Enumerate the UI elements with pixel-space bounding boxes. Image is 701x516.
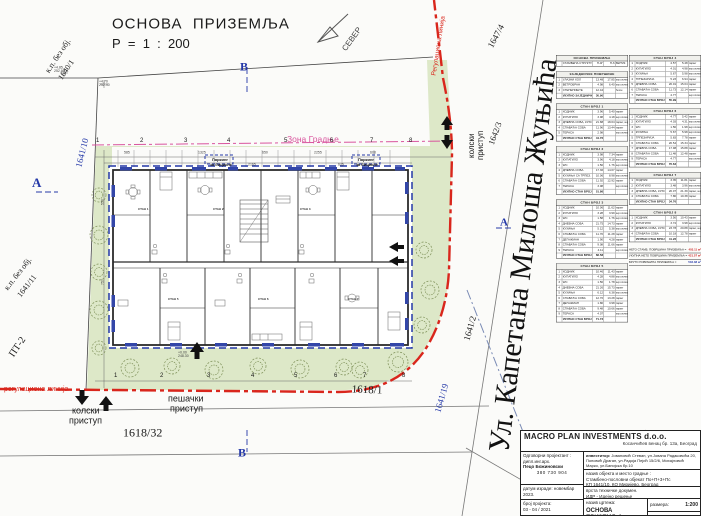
table-cell: кер.плочице <box>616 184 628 189</box>
table-cell: 20.54 <box>665 141 677 146</box>
table-cell <box>677 157 689 162</box>
plan-label: 7 <box>370 137 373 143</box>
table-cell <box>689 98 701 103</box>
table-cell: кер.плочице <box>616 275 628 280</box>
plan-label: 608 <box>370 151 376 155</box>
table-cell: ТЕРАСА <box>562 248 592 253</box>
plan-label: 5 <box>294 372 297 378</box>
plan-label: +4.70 252.40 <box>99 80 110 87</box>
table-cell: 11.92 <box>592 179 604 184</box>
table-cell: 13.48 <box>592 78 604 83</box>
table-cell: кер.плочице <box>616 115 628 120</box>
table-cell: кер.плочице <box>689 221 701 226</box>
table-cell: 7.78 <box>677 136 689 141</box>
table-cell: ХОДНИК <box>635 61 665 66</box>
plan-label: 2165 <box>248 163 256 167</box>
table-cell: 4.57 <box>665 61 677 66</box>
table-cell <box>616 317 628 322</box>
drawing-sheet: ОСНОВА ПРИЗЕМЉАР = 1 : 200СЕВЕРВВААУл. К… <box>0 0 701 516</box>
table-cell: 5.98 <box>677 130 689 135</box>
date-cell: датум израде: новембар 2023. <box>521 485 583 500</box>
table-cell <box>677 98 689 103</box>
plan-label: приступ <box>477 131 485 160</box>
table-cell: 5.67 <box>665 72 677 77</box>
table-cell: 3.96 <box>592 110 604 115</box>
table-cell: ТЕРАСА <box>562 184 592 189</box>
plan-label: 3 <box>207 372 210 378</box>
table-cell: КУПАТИЛО <box>635 67 665 72</box>
table-cell: 10.46 <box>592 270 604 275</box>
table-cell: 3.08 <box>592 184 604 189</box>
table-cell: СПАВАЋА СОБА <box>562 243 592 248</box>
table-cell: 17.85 <box>604 78 616 83</box>
plan-label: 1618/32 <box>123 427 162 440</box>
table-cell: 15.88 <box>677 146 689 151</box>
table-cell: паркет <box>689 151 701 156</box>
table-cell: кер.плочице <box>616 248 628 253</box>
plan-label: 4 <box>227 137 230 143</box>
table-cell: WC <box>562 280 592 285</box>
plan-label: 550 <box>101 199 105 205</box>
table-cell: ХОДНИК <box>635 216 665 221</box>
table-cell: 3.35 <box>665 178 677 183</box>
plan-label: 1 <box>114 372 117 378</box>
table-cell: паркет, кер.пл. <box>689 189 701 194</box>
plan-label: 6 <box>330 137 333 143</box>
table-cell: КУХИЊА <box>635 72 665 77</box>
table-cell: 7.86 <box>665 194 677 199</box>
plan-label: СТАН 6 <box>258 298 269 301</box>
table-cell <box>604 253 616 258</box>
table-cell: 12.78 <box>677 232 689 237</box>
table-cell: 5.12 <box>592 227 604 232</box>
table-cell: 4.18 <box>604 115 616 120</box>
apartment-area-table: СТАН БРОЈ 71ХОДНИК3.3511.81паркет2КУПАТИ… <box>629 172 701 205</box>
table-cell: 21.75 <box>592 222 604 227</box>
plan-label: А <box>500 216 508 228</box>
table-cell: КУПАТИЛО <box>562 115 592 120</box>
table-cell: кер.плочице <box>616 280 628 285</box>
table-cell: 30.90 <box>592 93 604 98</box>
table-cell <box>689 162 701 167</box>
plan-label: СТАН 7 <box>348 298 359 301</box>
table-row: УКУПНО СТАН БРОЈ 7 :34.76 <box>629 199 700 204</box>
plan-label: колски <box>72 406 100 415</box>
table-cell <box>616 189 628 194</box>
table-cell: кер.плочице <box>616 78 628 83</box>
table-cell: КУХИЊА <box>635 130 665 135</box>
plan-label: ОСНОВА ПРИЗЕМЉА <box>112 16 290 32</box>
table-row: УКУПНО СТАН БРОЈ 3 :68.58 <box>556 253 627 258</box>
table-cell: 20.01 <box>665 82 677 87</box>
table-cell: кер.плочице <box>616 216 628 221</box>
table-cell: 18.04 <box>604 120 616 125</box>
table-row: УКУПНО СТАН БРОЈ 8 :41.26 <box>629 237 700 242</box>
plan-label: пешачки <box>168 394 204 403</box>
table-cell: 4.01 <box>665 67 677 72</box>
table-cell: паркет <box>689 216 701 221</box>
table-row: УКУПНО ЗАЈЕДНИЧКЕ :30.90 <box>556 93 627 98</box>
table-cell: кер.плочице <box>616 83 628 88</box>
table-row: УКУПНО СТАН БРОЈ 4 :55.99 <box>629 98 700 103</box>
table-cell: 11.43 <box>604 270 616 275</box>
scale-label: размера: <box>650 502 669 508</box>
table-cell: ВЕРТИК. <box>616 61 628 66</box>
table-cell: 13.28 <box>604 296 616 301</box>
table-cell: 17.36 <box>592 168 604 173</box>
table-cell: СПАВАЋА СОБА <box>635 151 665 156</box>
table-cell: паркет <box>616 270 628 275</box>
drawing-title: ОСНОВА ПРИЗЕМЉА <box>586 508 645 516</box>
table-cell: ДЕГАЖМАН <box>562 301 592 306</box>
table-cell: паркет <box>689 136 701 141</box>
table-cell: кер.плочице <box>689 120 701 125</box>
plan-label: приступ <box>170 404 203 413</box>
table-cell: 5.98 <box>677 72 689 77</box>
plan-label: 650 <box>262 151 268 155</box>
project-number-value: 03 - 04 / 2021 <box>523 507 551 512</box>
table-cell: 4.28 <box>592 275 604 280</box>
table-cell: 11.73 <box>665 88 677 93</box>
table-cell: 14.73 <box>604 222 616 227</box>
table-cell: 13.44 <box>604 126 616 131</box>
table-cell: 4.03 <box>665 120 677 125</box>
table-cell: ХОДНИК <box>635 178 665 183</box>
apartment-area-table: ОСНОВА ПРИЗЕМЉАСТАМБЕНА СТРУКТУРАП-4ГП-6… <box>556 55 628 67</box>
table-cell: 4.77 <box>665 93 677 98</box>
table-cell: паркет, кер.пл. <box>689 226 701 231</box>
table-cell: 4.98 <box>592 83 604 88</box>
table-cell: 1.80 <box>592 301 604 306</box>
table-cell: 3.99 <box>604 211 616 216</box>
table-cell <box>677 93 689 98</box>
plan-label: за бицикле <box>210 163 232 167</box>
plan-label: 625 <box>338 163 344 167</box>
investor-cell: инвеститор: Јовановић Стеван, ул.Јована … <box>584 452 700 470</box>
plan-label: 585 <box>124 151 130 155</box>
table-cell: 6.94 <box>677 77 689 82</box>
table-cell: 5.23 <box>665 77 677 82</box>
table-cell: кер.плочице <box>616 174 628 179</box>
table-cell: кер.плочице <box>616 158 628 163</box>
doc-type-value: ИДР - Идејно решење <box>586 494 632 499</box>
apartment-area-table: СТАН БРОЈ 81ХОДНИК3.5610.43паркет2КУПАТИ… <box>629 210 701 243</box>
table-cell: кер.плочице <box>689 184 701 189</box>
table-cell: СПАВАЋА СОБА <box>562 232 592 237</box>
plan-label: 4 <box>251 372 254 378</box>
table-cell: ДНЕВНА СОБА <box>562 222 592 227</box>
plan-label: приступ <box>69 416 102 425</box>
plan-label: 1 <box>96 137 99 143</box>
table-cell: 21.88 <box>592 120 604 125</box>
table-cell: паркет <box>616 168 628 173</box>
table-cell: ДНЕВНА СОБА <box>562 168 592 173</box>
area-summary-row: БРУТО ПОВРШИНА ПРИЗЕМЉА =502.38 м² <box>629 259 701 265</box>
table-cell: ТЕРАСА <box>635 157 665 162</box>
table-cell: кер.плочице <box>689 72 701 77</box>
table-cell: паркет <box>689 194 701 199</box>
plan-label: 6 <box>334 372 337 378</box>
table-cell: кер.плочице <box>689 125 701 130</box>
company-address: Косанчићев венац бр. 13а, Београд <box>524 441 697 446</box>
table-cell: 12.14 <box>677 88 689 93</box>
table-cell: 4.77 <box>665 157 677 162</box>
table-cell: КУПАТИЛО <box>635 221 665 226</box>
table-cell: СТАМБЕНА СТРУКТУРА <box>562 61 592 66</box>
table-cell: ХОДНИК <box>635 115 665 120</box>
object-cell: назив објекта и место градње : Стамбено-… <box>584 470 700 487</box>
table-cell: 3.98 <box>677 221 689 226</box>
plan-label: 8 <box>402 372 405 378</box>
table-cell <box>616 136 628 141</box>
table-cell: 10.66 <box>604 307 616 312</box>
table-cell: паркет, кер.пл. <box>616 120 628 125</box>
table-cell <box>616 93 628 98</box>
table-cell: паркет <box>616 285 628 290</box>
table-cell: ВЕТРОБРАН <box>562 83 592 88</box>
table-cell: 55.99 <box>665 98 677 103</box>
table-cell: 8.98 <box>604 174 616 179</box>
table-cell: 9.08 <box>592 243 604 248</box>
table-row: СТАМБЕНА СТРУКТУРАП-4ГП-6ВЕРТИК. <box>556 61 627 66</box>
table-cell: КУПАТИЛО <box>562 158 592 163</box>
table-cell: 15.73 <box>604 285 616 290</box>
plan-label: +4.85 252.90 <box>54 66 65 73</box>
table-cell: 10.06 <box>592 206 604 211</box>
table-cell: КУПАТИЛО <box>635 120 665 125</box>
table-cell: ХОДНИК <box>562 110 592 115</box>
table-cell: 1.56 <box>665 125 677 130</box>
table-cell <box>689 199 701 204</box>
summary-label: БРУТО ПОВРШИНА ПРИЗЕМЉА = <box>629 259 676 265</box>
table-cell <box>604 184 616 189</box>
table-cell: 11.62 <box>604 206 616 211</box>
table-cell <box>604 93 616 98</box>
table-cell: КУПАТИЛО <box>562 275 592 280</box>
table-cell: 3.98 <box>604 301 616 306</box>
table-cell: 11.28 <box>604 232 616 237</box>
table-cell: 9.48 <box>592 307 604 312</box>
table-cell: 21.39 <box>677 189 689 194</box>
table-row: УКУПНО СТАН БРОЈ 1 :44.76 <box>556 136 627 141</box>
table-cell: кер.плочице <box>616 131 628 136</box>
apartment-area-table: ЗАЈЕДНИЧКЕ ПОВРШИНЕ1УЛАЗНИ ХОЛ13.4817.85… <box>556 71 628 98</box>
table-cell: 5.67 <box>665 130 677 135</box>
table-cell: ТРПЕЗАРИЈА <box>635 136 665 141</box>
table-cell: паркет <box>616 110 628 115</box>
summary-value: 502.38 м² <box>688 259 701 265</box>
table-row: УКУПНО СТАН БРОЈ 2 :51.86 <box>556 189 627 194</box>
table-cell: 10.18 <box>665 232 677 237</box>
table-cell <box>604 131 616 136</box>
apartment-area-table: СТАН БРОЈ 61ХОДНИК4.775.42паркет2КУПАТИЛ… <box>629 108 701 167</box>
plan-label: 7 <box>363 372 366 378</box>
table-cell: ХОДНИК <box>562 152 592 157</box>
table-cell: 10.43 <box>677 216 689 221</box>
plan-label: за бицикле <box>356 163 378 167</box>
table-cell: 34.76 <box>665 199 677 204</box>
table-cell: 3.56 <box>665 216 677 221</box>
table-cell: ТЕРАСА <box>635 93 665 98</box>
summary-value: 421.57 м² <box>688 253 701 259</box>
table-cell: 4.28 <box>604 237 616 242</box>
table-cell: кер.плочице <box>689 67 701 72</box>
area-tables-left-column: ОСНОВА ПРИЗЕМЉАСТАМБЕНА СТРУКТУРАП-4ГП-6… <box>556 55 628 327</box>
table-cell: ТРПЕЗАРИЈА <box>635 77 665 82</box>
table-cell: КУХИЊА СА ТРПЕЗ. <box>562 174 592 179</box>
table-cell: 41.26 <box>665 237 677 242</box>
table-cell: ДНЕВНА СОБА, КУХИЊА <box>635 189 665 194</box>
table-cell: 4.07 <box>592 312 604 317</box>
table-cell: КУХИЊА <box>562 291 592 296</box>
plan-label: регулациона линија <box>4 385 68 392</box>
table-cell: 1.56 <box>592 280 604 285</box>
table-cell: паркет <box>689 146 701 151</box>
table-cell: паркет <box>616 307 628 312</box>
table-row: УКУПНО СТАН БРОЈ 5 :71.73 <box>556 317 627 322</box>
table-cell: паркет <box>689 141 701 146</box>
table-cell: ДЕГАЖМАН <box>562 237 592 242</box>
table-cell <box>677 237 689 242</box>
table-cell: 3.96 <box>677 184 689 189</box>
table-cell <box>677 162 689 167</box>
table-cell: ДНЕВНА СОБА <box>562 285 592 290</box>
table-cell: 4.77 <box>665 115 677 120</box>
table-cell: паркет <box>616 243 628 248</box>
table-cell: 6.12 <box>592 291 604 296</box>
table-cell: 12.44 <box>592 88 604 93</box>
table-cell: УКУПНО СТАН БРОЈ 5 : <box>562 317 592 322</box>
table-cell: паркет <box>616 296 628 301</box>
table-cell: 3.98 <box>592 115 604 120</box>
doc-type-cell: врста техничке докумен. ИДР - Идејно реш… <box>584 487 700 499</box>
plan-label: 2 <box>140 137 143 143</box>
table-row: УКУПНО СТАН БРОЈ 6 :76.63 <box>629 162 700 167</box>
table-cell <box>677 199 689 204</box>
table-cell: кер.плочице <box>689 93 701 98</box>
table-cell: 15.04 <box>677 82 689 87</box>
plan-label: 2 <box>160 372 163 378</box>
table-cell: 1.78 <box>604 280 616 285</box>
table-cell: СПАВАЋА СОБА <box>562 179 592 184</box>
table-cell: 3.74 <box>665 221 677 226</box>
table-cell: 20.07 <box>665 189 677 194</box>
table-cell <box>604 189 616 194</box>
apartment-area-table: СТАН БРОЈ 11ХОДНИК3.965.40паркет2КУПАТИЛ… <box>556 103 628 141</box>
table-cell: 10.06 <box>592 174 604 179</box>
table-cell: 5.48 <box>677 61 689 66</box>
table-cell: 4.88 <box>604 275 616 280</box>
table-cell: УКУПНО СТАН БРОЈ 4 : <box>635 98 665 103</box>
table-cell: ТЕРАСА <box>562 312 592 317</box>
table-cell <box>604 136 616 141</box>
table-cell: 1.90 <box>592 237 604 242</box>
table-cell: 1.76 <box>604 216 616 221</box>
plan-label: Р = 1 : 200 <box>112 37 190 51</box>
apartment-area-table: СТАН БРОЈ 21ХОДНИК3.987.34паркет2КУПАТИЛ… <box>556 146 628 194</box>
table-cell: УКУПНО СТАН БРОЈ 7 : <box>635 199 665 204</box>
table-cell: WC <box>562 163 592 168</box>
table-cell: КУПАТИЛО <box>562 211 592 216</box>
table-cell: бетон <box>616 88 628 93</box>
designer-license: 380 730 904 <box>523 470 581 476</box>
table-cell: 17.98 <box>665 146 677 151</box>
table-cell: паркет <box>689 82 701 87</box>
plan-label: 5 <box>284 137 287 143</box>
table-cell: 68.58 <box>592 253 604 258</box>
table-cell: УКУПНО СТАН БРОЈ 1 : <box>562 136 592 141</box>
plan-label: 2255 <box>314 151 322 155</box>
table-cell: кер.плочице <box>616 211 628 216</box>
table-cell: паркет <box>689 61 701 66</box>
table-cell: УКУПНО СТАН БРОЈ 2 : <box>562 189 592 194</box>
table-cell: паркет <box>689 77 701 82</box>
north-arrow-icon <box>318 14 348 42</box>
table-cell <box>604 312 616 317</box>
plan-label: СТАН 3 <box>300 208 311 211</box>
table-cell: 3.48 <box>665 184 677 189</box>
summary-label: УКУПНА НЕТО ПОВРШИНА ПРИЗЕМЉА = <box>629 253 687 259</box>
apartment-area-table: СТАН БРОЈ 31ХОДНИК10.0611.62паркет2КУПАТ… <box>556 199 628 258</box>
table-cell: 11.66 <box>604 243 616 248</box>
table-cell: кер.плочице <box>616 291 628 296</box>
table-cell: ДНЕВНА СОБА <box>635 146 665 151</box>
area-tables-right-column: СТАН БРОЈ 41ХОДНИК4.575.48паркет2КУПАТИЛ… <box>629 55 701 266</box>
plan-label: 8 <box>409 137 412 143</box>
table-cell: ДНЕВНА СОБА <box>635 82 665 87</box>
plan-label: А <box>32 176 41 190</box>
table-cell: 1.76 <box>604 163 616 168</box>
plan-label: СТАН 5 <box>168 298 179 301</box>
title-block: MACRO PLAN INVESTMENTS d.o.o. Косанчићев… <box>520 430 701 516</box>
table-cell: ДНЕВНА СОБА, КУХИЊА <box>635 226 665 231</box>
table-cell: 1.58 <box>592 216 604 221</box>
table-cell: 14.07 <box>604 168 616 173</box>
table-cell: 11.70 <box>592 232 604 237</box>
table-cell: паркет <box>689 115 701 120</box>
table-cell: 12.92 <box>604 179 616 184</box>
table-cell: 4.11 <box>592 248 604 253</box>
table-cell: 5.42 <box>677 115 689 120</box>
plan-label: 1325 <box>198 151 206 155</box>
table-cell: паркет <box>616 232 628 237</box>
drawing-label: назив цртежа: <box>586 500 645 506</box>
table-cell: 3.98 <box>592 152 604 157</box>
summary-label: НЕТО СТАМБ. ПОВРШИНА ПРИЗЕМЉА = <box>629 247 686 253</box>
building-footprint <box>109 166 412 348</box>
table-cell: WC <box>635 125 665 130</box>
table-cell: УКУПНО СТАН БРОЈ 3 : <box>562 253 592 258</box>
table-cell: 2.98 <box>592 131 604 136</box>
table-cell: П-6 <box>604 61 616 66</box>
apartment-area-table: СТАН БРОЈ 51ХОДНИК10.4611.43паркет2КУПАТ… <box>556 263 628 322</box>
table-cell: паркет <box>689 232 701 237</box>
table-cell <box>604 317 616 322</box>
table-cell: 23.78 <box>665 226 677 231</box>
table-cell: 7.34 <box>604 152 616 157</box>
table-cell: СПАВАЋА СОБА <box>562 296 592 301</box>
table-cell: УКУПНО ЗАЈЕДНИЧКЕ : <box>562 93 592 98</box>
table-cell: СПАВАЋА СОБА <box>635 194 665 199</box>
apartment-area-table: СТАН БРОЈ 41ХОДНИК4.575.48паркет2КУПАТИЛ… <box>629 55 701 103</box>
project-number-cell: број пројекта: 03 - 04 / 2021 <box>521 500 583 515</box>
table-cell: 1.98 <box>677 125 689 130</box>
plan-label: В <box>240 61 248 74</box>
table-cell: 15.34 <box>677 141 689 146</box>
table-cell: 44.76 <box>592 136 604 141</box>
table-cell <box>616 253 628 258</box>
table-cell: 4.98 <box>677 67 689 72</box>
